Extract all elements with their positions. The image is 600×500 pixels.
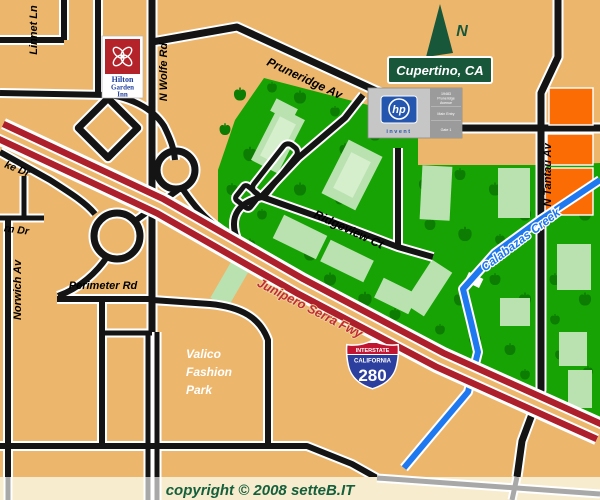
hp-invent-text: invent	[386, 129, 411, 135]
hp-sign: hp invent 19483 Pruneridge Avenue Main E…	[368, 88, 462, 138]
label-valico-3: Park	[186, 383, 213, 397]
city-badge-text: Cupertino, CA	[396, 63, 483, 78]
hp-gate: Gate 1	[441, 128, 452, 132]
label-valico-1: Valico	[186, 347, 221, 361]
map-canvas: Linnet Ln N Wolfe Rd Pruneridge Av N Tan…	[0, 0, 600, 500]
hp-address-2: Pruneridge	[437, 97, 455, 101]
shield-interstate-text: INTERSTATE	[356, 348, 390, 354]
label-n-wolfe-rd: N Wolfe Rd	[158, 42, 170, 101]
shield-number-text: 280	[358, 366, 386, 385]
copyright-text: copyright © 2008 setteB.IT	[166, 482, 356, 499]
label-norwich-av: Norwich Av	[12, 259, 24, 320]
road-minor-4	[0, 93, 108, 95]
cupertino-map: Linnet Ln N Wolfe Rd Pruneridge Av N Tan…	[0, 0, 600, 500]
north-arrow-label: N	[456, 23, 468, 40]
label-linnet-ln: Linnet Ln	[28, 5, 40, 55]
hilton-sign: Hilton Garden Inn	[102, 36, 143, 99]
label-valico-2: Fashion	[186, 365, 232, 379]
hp-logo-text: hp	[392, 104, 406, 116]
hp-main-entry: Main Entry	[437, 112, 454, 116]
hp-address-1: 19483	[441, 92, 451, 96]
hp-address-3: Avenue	[440, 101, 452, 105]
label-perimeter-rd: Perimeter Rd	[69, 280, 138, 292]
shield-california-text: CALIFORNIA	[354, 359, 392, 365]
label-n-tantau-av: N Tantau Av	[542, 142, 554, 206]
city-badge: Cupertino, CA	[388, 57, 492, 83]
hilton-text-3: Inn	[117, 91, 128, 99]
